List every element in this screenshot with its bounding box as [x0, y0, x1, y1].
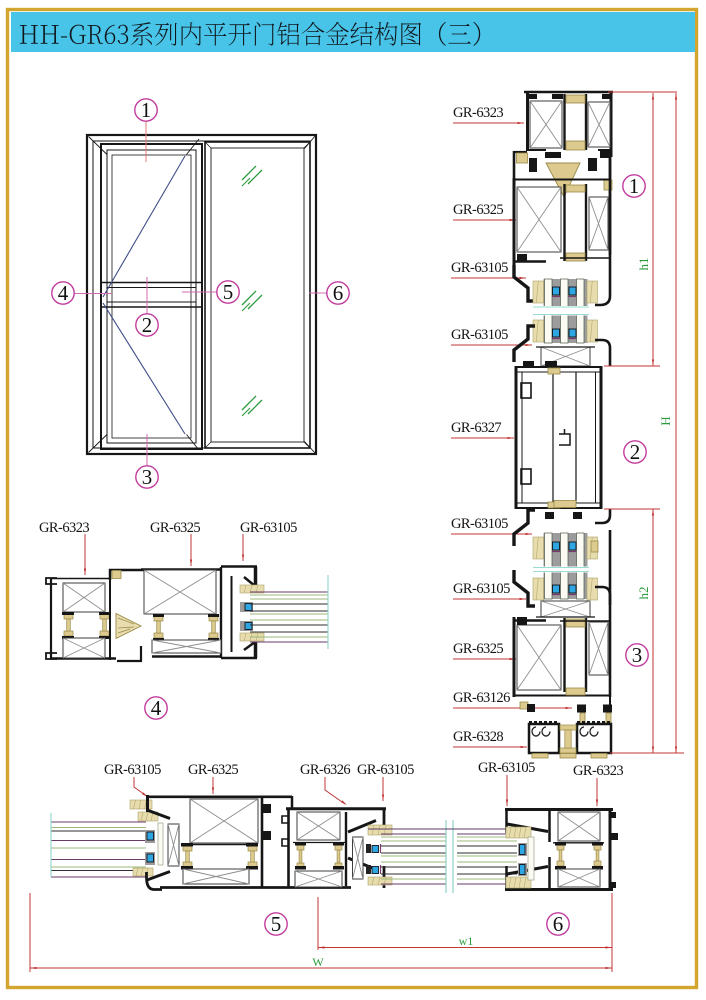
svg-text:GR-63126: GR-63126	[453, 690, 510, 706]
svg-text:GR-6328: GR-6328	[453, 729, 503, 745]
svg-text:h2: h2	[636, 587, 651, 600]
svg-text:3: 3	[142, 465, 153, 489]
svg-text:GR-63105: GR-63105	[240, 520, 297, 536]
svg-text:GR-63105: GR-63105	[451, 516, 508, 532]
svg-text:GR-6323: GR-6323	[39, 520, 89, 536]
svg-text:GR-63105: GR-63105	[357, 762, 414, 778]
svg-text:5: 5	[271, 912, 282, 936]
svg-text:4: 4	[58, 281, 69, 305]
svg-text:GR-6323: GR-6323	[453, 105, 503, 121]
svg-text:GR-6323: GR-6323	[573, 763, 623, 779]
svg-text:GR-6325: GR-6325	[453, 202, 503, 218]
svg-text:GR-63105: GR-63105	[453, 581, 510, 597]
svg-text:h1: h1	[636, 258, 651, 271]
svg-text:2: 2	[142, 313, 153, 337]
svg-text:GR-63105: GR-63105	[451, 327, 508, 343]
svg-text:GR-6327: GR-6327	[451, 420, 501, 436]
svg-text:GR-6325: GR-6325	[150, 520, 200, 536]
svg-text:6: 6	[333, 281, 344, 305]
svg-text:2: 2	[630, 440, 641, 464]
svg-text:GR-6326: GR-6326	[300, 762, 350, 778]
svg-text:GR-6325: GR-6325	[188, 762, 238, 778]
svg-text:GR-63105: GR-63105	[104, 762, 161, 778]
svg-text:GR-63105: GR-63105	[478, 760, 535, 776]
svg-text:1: 1	[629, 174, 640, 198]
svg-text:4: 4	[151, 696, 162, 720]
svg-text:GR-6325: GR-6325	[453, 641, 503, 657]
svg-text:W: W	[312, 955, 324, 969]
svg-text:w1: w1	[459, 934, 474, 948]
svg-text:1: 1	[141, 98, 152, 122]
svg-text:6: 6	[553, 912, 564, 936]
svg-text:GR-63105: GR-63105	[451, 260, 508, 276]
svg-text:5: 5	[223, 280, 234, 304]
svg-text:3: 3	[632, 643, 643, 667]
svg-text:H: H	[658, 416, 673, 425]
